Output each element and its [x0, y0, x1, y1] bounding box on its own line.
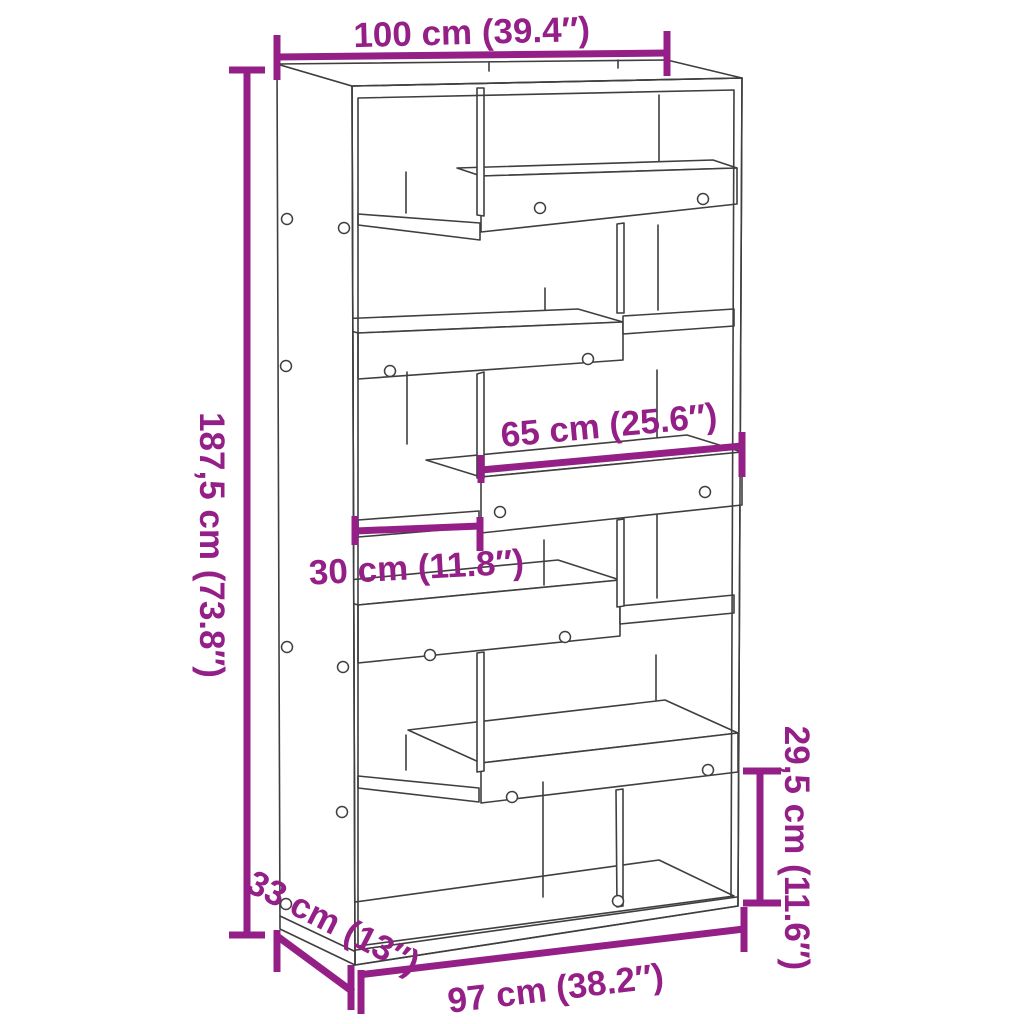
bookcase-dimension-diagram: 100 cm (39.4″) 187,5 cm (73.8″) 65 cm (2…: [0, 0, 1024, 1024]
cam-hole: [700, 487, 711, 498]
bookcase-drawing: [277, 60, 742, 965]
cam-hole: [339, 223, 350, 234]
cam-hole: [560, 632, 571, 643]
cam-hole: [281, 361, 292, 372]
cam-hole: [613, 896, 624, 907]
cam-hole: [338, 662, 349, 673]
cam-hole: [583, 354, 594, 365]
divider: [617, 519, 624, 607]
cam-hole: [282, 214, 293, 225]
diagram-canvas: 100 cm (39.4″) 187,5 cm (73.8″) 65 cm (2…: [0, 0, 1024, 1024]
dimension-line: [355, 526, 480, 531]
dimension-bottom-cell-height: 29,5 cm (11.6″): [743, 726, 816, 970]
cam-hole: [337, 807, 348, 818]
cam-hole: [282, 642, 293, 653]
dimension-label-width-bottom: 97 cm (38.2″): [446, 956, 666, 1020]
dimension-height-left: 187,5 cm (73.8″): [192, 70, 265, 935]
cam-hole: [535, 203, 546, 214]
cam-hole: [425, 650, 436, 661]
dimension-line: [277, 53, 667, 57]
cam-hole: [698, 194, 709, 205]
divider: [477, 652, 484, 772]
dimension-label-height-left: 187,5 cm (73.8″): [192, 412, 231, 678]
bookcase-left-side-panel: [277, 64, 355, 965]
cam-hole: [507, 792, 518, 803]
cam-hole: [385, 366, 396, 377]
divider: [477, 88, 484, 216]
cam-hole: [495, 507, 506, 518]
cam-hole: [703, 765, 714, 776]
divider: [616, 789, 623, 907]
dimension-label-width-top: 100 cm (39.4″): [353, 10, 591, 55]
dimension-label-bottom-cell: 29,5 cm (11.6″): [777, 726, 816, 970]
divider: [617, 223, 624, 313]
